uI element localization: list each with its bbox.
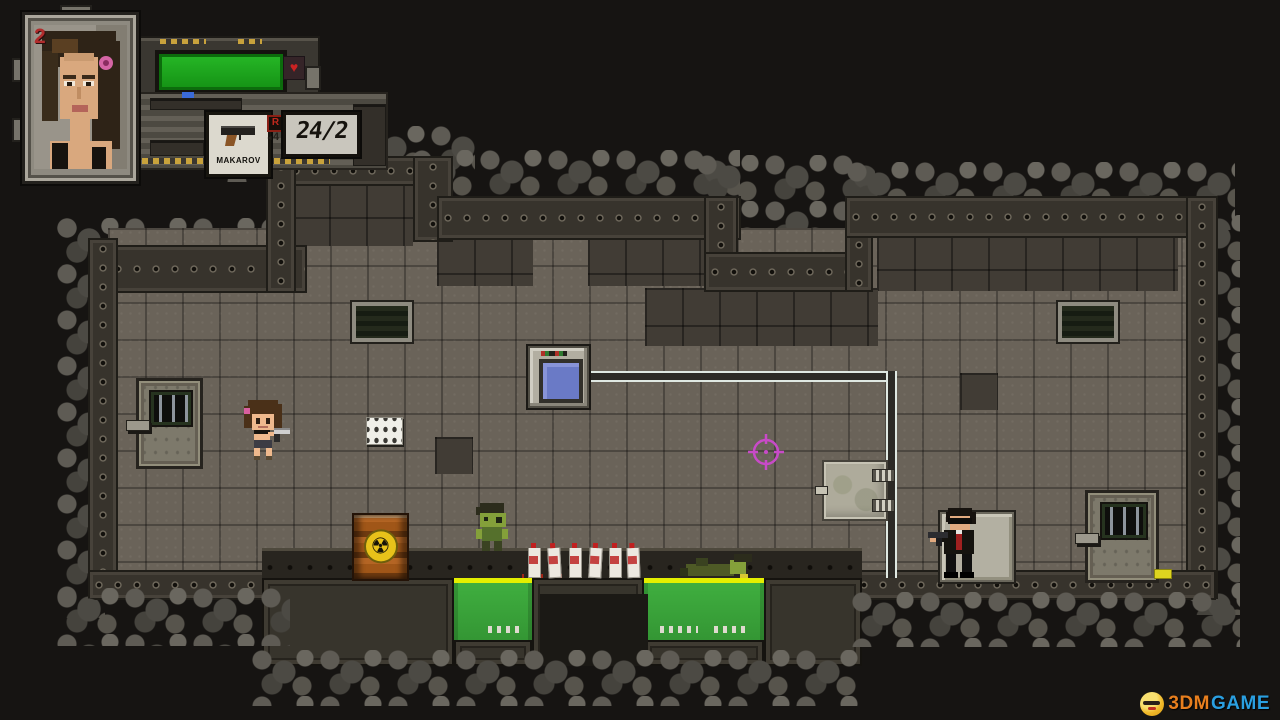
- dark-floor-patch: [960, 373, 998, 410]
- wall-hatch[interactable]: [822, 460, 888, 521]
- bottle[interactable]: [528, 548, 541, 578]
- acid-pool[interactable]: [454, 578, 532, 645]
- player-portrait: 2: [22, 12, 139, 184]
- magazine-count: ◄4: [266, 131, 279, 145]
- rocks: [55, 588, 290, 646]
- weapon-slot[interactable]: MAKAROV: [206, 112, 271, 177]
- hud-decor: [305, 66, 321, 90]
- dark-floor-patch: [645, 288, 878, 346]
- health-bar: [155, 50, 287, 94]
- dark-floor-patch: [435, 437, 473, 474]
- ammo-value: 24/2: [293, 115, 349, 148]
- player-character[interactable]: [234, 398, 292, 460]
- latch-icon: [872, 499, 895, 512]
- watermark-3dm: 3DM: [1168, 693, 1210, 715]
- hud-decor: [150, 140, 204, 156]
- reload-key-label: R: [272, 117, 279, 128]
- door-left[interactable]: [136, 378, 203, 469]
- acid-pool[interactable]: [644, 578, 764, 645]
- terminal-screen-icon: [539, 359, 583, 403]
- latch-icon: [815, 486, 828, 495]
- radiation-icon: ☢: [364, 529, 398, 563]
- crosshair-cursor-icon: [744, 430, 788, 474]
- door-window-icon: [151, 392, 191, 425]
- watermark: 3DMGAME: [1140, 692, 1270, 716]
- zombie-sprite-icon: [466, 501, 516, 553]
- dark-floor-patch: [877, 232, 1178, 291]
- health-heart: ♥: [283, 56, 305, 80]
- pool-marks: [660, 626, 698, 633]
- door-right[interactable]: [1085, 490, 1159, 583]
- ammo-pickup[interactable]: [1154, 569, 1172, 579]
- game-screen: ☢: [0, 0, 1280, 720]
- lives-count: 2: [34, 25, 46, 49]
- portrait-photo-icon: [34, 25, 127, 169]
- rocks: [850, 592, 1240, 647]
- wall-vent-icon: [352, 302, 412, 342]
- reload-arrow-icon: ◄: [266, 135, 273, 142]
- agent-sprite-icon: [928, 506, 990, 580]
- power-wire: [585, 371, 893, 382]
- pool-marks: [488, 626, 522, 633]
- bottle[interactable]: [588, 548, 603, 579]
- door-handle-icon: [1075, 533, 1099, 544]
- wall: [88, 238, 118, 599]
- hud: ♥ MAKAROV R ◄4 24/2: [0, 0, 420, 200]
- wall-terminal[interactable]: [528, 346, 589, 408]
- keypad[interactable]: [366, 417, 403, 445]
- heart-icon: ♥: [290, 59, 298, 75]
- dark-floor-patch: [437, 236, 533, 286]
- door-handle-icon: [126, 420, 150, 431]
- pistol-icon: [217, 120, 261, 150]
- wall: [1186, 196, 1218, 599]
- bottle[interactable]: [626, 548, 640, 578]
- door-window-icon: [1102, 504, 1146, 538]
- pool-marks: [714, 626, 748, 633]
- wall: [437, 196, 741, 240]
- dark-floor-patch: [588, 236, 711, 286]
- hud-decor: [160, 39, 206, 44]
- magazine-count-value: 4: [273, 131, 279, 143]
- hud-decor: [150, 98, 242, 110]
- player-sprite-icon: [234, 398, 292, 460]
- corpse-sprite-icon: [680, 552, 758, 580]
- wall: [845, 196, 1216, 238]
- bottle[interactable]: [547, 548, 562, 579]
- bottle[interactable]: [569, 548, 582, 578]
- zombie-enemy[interactable]: [466, 501, 516, 553]
- bottle[interactable]: [609, 548, 622, 578]
- ammo-counter: 24/2: [283, 112, 360, 157]
- weapon-name: MAKAROV: [209, 156, 268, 165]
- reload-key-badge: R: [267, 115, 284, 132]
- watermark-game: GAME: [1211, 693, 1270, 715]
- rocks: [250, 650, 860, 706]
- latch-icon: [872, 469, 895, 482]
- hud-decor: [238, 39, 262, 44]
- wall-vent-icon: [1058, 302, 1118, 342]
- hud-decor: [182, 92, 194, 98]
- terminal-lights-icon: [541, 351, 567, 356]
- chick-logo-icon: [1140, 692, 1164, 716]
- zombie-corpse: [680, 552, 758, 580]
- radioactive-barrel[interactable]: ☢: [352, 513, 409, 581]
- agent-enemy[interactable]: [928, 506, 990, 580]
